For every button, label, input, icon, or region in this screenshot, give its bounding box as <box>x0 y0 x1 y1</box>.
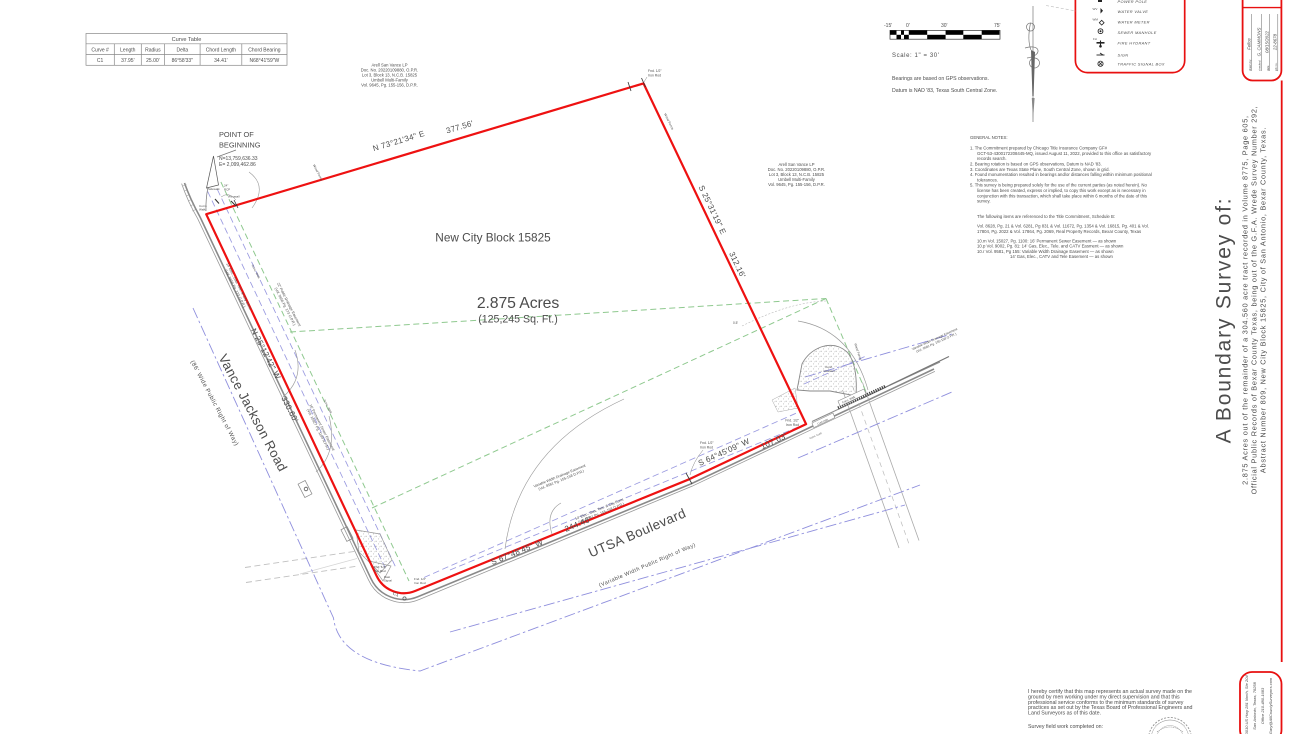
svg-text:08/15/2022: 08/15/2022 <box>1264 30 1269 53</box>
svg-text:TRAFFIC SIGNAL BOX: TRAFFIC SIGNAL BOX <box>1118 61 1165 66</box>
svg-text:Chord Length: Chord Length <box>206 48 237 54</box>
svg-text:2.875 Acres out of the remaind: 2.875 Acres out of the remainder of a 30… <box>1241 115 1250 485</box>
svg-text:10.m Vol. 15027, Pg. 1100: 16': 10.m Vol. 15027, Pg. 1100: 16' Permanent… <box>977 238 1117 243</box>
svg-text:E= 2,099,462.86: E= 2,099,462.86 <box>219 162 256 168</box>
svg-text:FIRE HYDRANT: FIRE HYDRANT <box>1118 41 1151 46</box>
svg-text:Felice: Felice <box>1246 38 1251 50</box>
svg-text:Datum is NAD '83, Texas South: Datum is NAD '83, Texas South Central Zo… <box>892 88 997 94</box>
svg-text:14' Gas, Elec., CATV and Tele: 14' Gas, Elec., CATV and Tele Easement —… <box>1010 254 1113 259</box>
svg-text:2. Bearing rotation is based: 2. Bearing rotation is based on GPS obse… <box>970 162 1102 167</box>
svg-text:SEWER MANHOLE: SEWER MANHOLE <box>1118 30 1157 35</box>
svg-text:Vol. 9645, Pg. 155-156, D.P.R.: Vol. 9645, Pg. 155-156, D.P.R. <box>768 182 825 187</box>
svg-text:survey.: survey. <box>977 199 991 204</box>
svg-text:30': 30' <box>941 23 948 29</box>
svg-text:Delta: Delta <box>176 48 188 54</box>
svg-text:Radius: Radius <box>145 48 161 54</box>
svg-text:10.p Vol. 9002, Pg. 81: 14' Ga: 10.p Vol. 9002, Pg. 81: 14' Gas, Elec., … <box>977 244 1124 249</box>
svg-text:records search.: records search. <box>977 156 1007 161</box>
svg-text:Iron Rod: Iron Rod <box>700 445 713 449</box>
svg-text:4. Found monumentation resul: 4. Found monumentation resulted in beari… <box>970 172 1152 177</box>
svg-text:Fnd. 1/2": Fnd. 1/2" <box>785 419 799 423</box>
svg-text:75': 75' <box>994 23 1001 29</box>
svg-text:Fnd. 1/2": Fnd. 1/2" <box>648 69 662 73</box>
svg-text:Vol. 8628, Pg. 21 & Vol. 6281,: Vol. 8628, Pg. 21 & Vol. 6281, Pg 831 & … <box>977 224 1149 229</box>
svg-text:Abstract Number 809, New City: Abstract Number 809, New City Block 1582… <box>1259 127 1268 473</box>
svg-text:34.41': 34.41' <box>214 58 228 64</box>
svg-text:conjunction with this transact: conjunction with this transaction, which… <box>977 193 1147 198</box>
svg-text:Chord Bearing: Chord Bearing <box>248 48 280 54</box>
svg-text:Channel: Channel <box>823 369 835 373</box>
svg-text:Iron Rod: Iron Rod <box>414 581 426 585</box>
svg-text:license has been created, expr: license has been created, express or imp… <box>977 188 1146 193</box>
svg-text:FH: FH <box>1093 37 1097 41</box>
svg-text:(125,245 Sq. Ft.): (125,245 Sq. Ft.) <box>478 314 558 326</box>
svg-text:Vol. 9645, Pg. 155-156, D.P.R.: Vol. 9645, Pg. 155-156, D.P.R. <box>361 83 418 88</box>
svg-text:WM: WM <box>1093 18 1099 22</box>
svg-text:22-8678: 22-8678 <box>1273 33 1278 51</box>
svg-text:San Antonio, Texas, 78258: San Antonio, Texas, 78258 <box>1252 681 1257 730</box>
svg-text:BEGINNING: BEGINNING <box>219 141 261 150</box>
svg-text:37.95': 37.95' <box>121 58 135 64</box>
svg-text:Scale: 1" = 30': Scale: 1" = 30' <box>892 53 939 59</box>
svg-text:WATER VALVE: WATER VALVE <box>1118 9 1149 14</box>
svg-text:New City Block 15825: New City Block 15825 <box>435 231 551 245</box>
svg-text:POINT OF: POINT OF <box>219 130 254 139</box>
svg-text:10.r Vol. 9581, Pg 155: Varia: 10.r Vol. 9581, Pg 155: Variable Width D… <box>977 249 1114 254</box>
svg-text:job no.: job no. <box>1274 62 1278 72</box>
svg-text:SIGN: SIGN <box>1118 53 1129 58</box>
svg-text:N68°41'59"W: N68°41'59"W <box>250 58 280 64</box>
svg-text:Curve #: Curve # <box>91 48 109 54</box>
svg-text:A Boundary Survey of:: A Boundary Survey of: <box>1213 197 1236 444</box>
svg-text:WATER METER: WATER METER <box>1118 20 1150 25</box>
svg-text:Official Public Records of Bex: Official Public Records of Bexar County … <box>1250 106 1259 495</box>
svg-text:G. CAMMONS: G. CAMMONS <box>1256 28 1261 57</box>
svg-text:checked: checked <box>1258 60 1262 71</box>
svg-text:date: date <box>1266 65 1270 71</box>
svg-text:17804, Pg. 2022 & Vol. 17864,: 17804, Pg. 2022 & Vol. 17864, Pg. 2069, … <box>977 229 1141 234</box>
svg-text:0': 0' <box>906 23 910 29</box>
svg-text:drawn by: drawn by <box>1248 59 1252 71</box>
svg-text:0.5': 0.5' <box>733 321 738 325</box>
svg-text:5. This survey is being prep: 5. This survey is being prepared solely … <box>970 183 1148 188</box>
svg-text:2.875 Acres: 2.875 Acres <box>477 295 560 312</box>
svg-text:Length: Length <box>120 48 136 54</box>
svg-text:GENERAL NOTES:: GENERAL NOTES: <box>970 135 1008 140</box>
svg-text:Iron Rod: Iron Rod <box>648 73 661 77</box>
svg-text:POWER POLE: POWER POLE <box>1118 0 1148 4</box>
svg-text:Walk: Walk <box>199 208 206 212</box>
svg-text:WV: WV <box>1093 7 1098 11</box>
svg-text:Iron Rod: Iron Rod <box>374 569 386 573</box>
svg-text:Signal: Signal <box>384 579 392 583</box>
svg-text:25.00': 25.00' <box>146 58 160 64</box>
svg-text:3. Coordinates are Texas Sta: 3. Coordinates are Texas State Plane, So… <box>970 167 1110 172</box>
svg-text:C1: C1 <box>97 58 104 64</box>
svg-text:The following items are refere: The following items are referenced to th… <box>977 214 1115 219</box>
svg-text:Office 210-480-1683: Office 210-480-1683 <box>1260 687 1265 724</box>
svg-text:Survey field work completed on: Survey field work completed on: <box>1028 724 1103 730</box>
svg-text:Gary@AllCountySurveyors.com: Gary@AllCountySurveyors.com <box>1268 677 1273 734</box>
svg-text:86°58'33": 86°58'33" <box>172 58 194 64</box>
svg-text:10010 US Hwy 281 North, Ste 20: 10010 US Hwy 281 North, Ste 204 <box>1244 675 1249 734</box>
svg-text:Fnd. 1/2": Fnd. 1/2" <box>700 441 714 445</box>
svg-text:Bearings are based on GPS obse: Bearings are based on GPS observations. <box>892 76 989 82</box>
svg-text:GCT-53-4300172208445-MQ, issue: GCT-53-4300172208445-MQ, issued August 1… <box>977 151 1152 156</box>
svg-text:RCP: RCP <box>224 188 230 192</box>
svg-text:Curve Table: Curve Table <box>172 37 202 43</box>
svg-text:Iron Rod: Iron Rod <box>786 423 799 427</box>
svg-text:Sidewalk: Sidewalk <box>208 187 220 191</box>
svg-text:1. The Commitment prepared b: 1. The Commitment prepared by Chicago Ti… <box>970 146 1108 151</box>
svg-text:Land Surveyors as of this date: Land Surveyors as of this date. <box>1028 711 1101 717</box>
svg-text:-15': -15' <box>884 23 892 29</box>
svg-text:tolerances.: tolerances. <box>977 177 998 182</box>
